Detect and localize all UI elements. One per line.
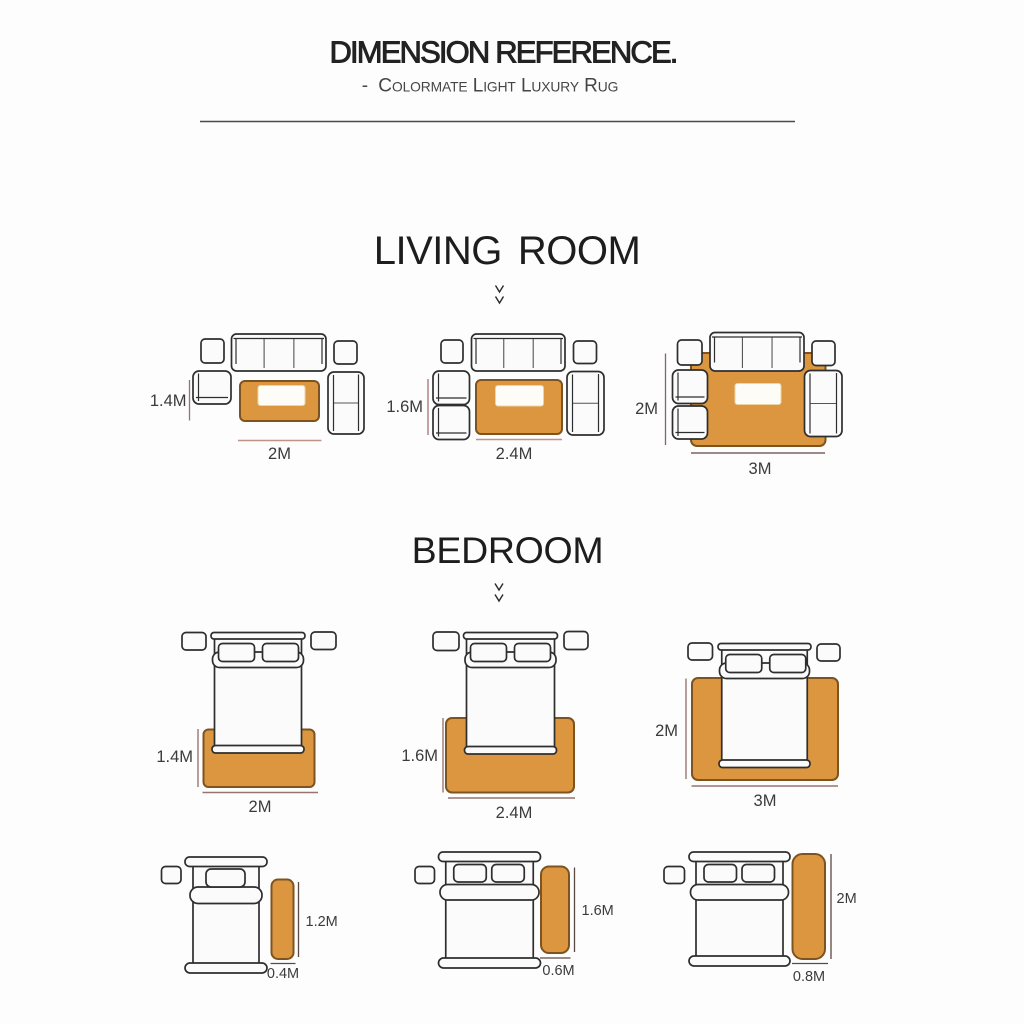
svg-text:0.6M: 0.6M — [542, 963, 574, 979]
svg-text:1.6M: 1.6M — [582, 903, 614, 919]
svg-text:1.4M: 1.4M — [156, 748, 193, 766]
svg-text:1.2M: 1.2M — [306, 914, 338, 930]
svg-text:2M: 2M — [268, 445, 291, 463]
svg-text:3M: 3M — [749, 460, 772, 478]
svg-text:2.4M: 2.4M — [496, 804, 533, 822]
svg-text:1.4M: 1.4M — [150, 392, 187, 410]
svg-text:2M: 2M — [249, 798, 272, 816]
svg-text:- COLORMATE LIGHT LUXURY RUG: - COLORMATE LIGHT LUXURY RUG — [362, 76, 619, 97]
svg-text:0.8M: 0.8M — [793, 969, 825, 985]
svg-text:LIVINGROOM: LIVINGROOM — [374, 229, 641, 273]
svg-text:2M: 2M — [837, 891, 857, 907]
svg-text:0.4M: 0.4M — [267, 966, 299, 982]
svg-text:2.4M: 2.4M — [496, 445, 533, 463]
svg-text:3M: 3M — [754, 792, 777, 810]
svg-text:1.6M: 1.6M — [386, 398, 423, 416]
svg-text:DIMENSION REFERENCE.: DIMENSION REFERENCE. — [329, 35, 676, 70]
svg-text:BEDROOM: BEDROOM — [412, 529, 604, 571]
svg-text:2M: 2M — [655, 722, 678, 740]
svg-text:1.6M: 1.6M — [401, 747, 438, 765]
svg-text:2M: 2M — [635, 400, 658, 418]
